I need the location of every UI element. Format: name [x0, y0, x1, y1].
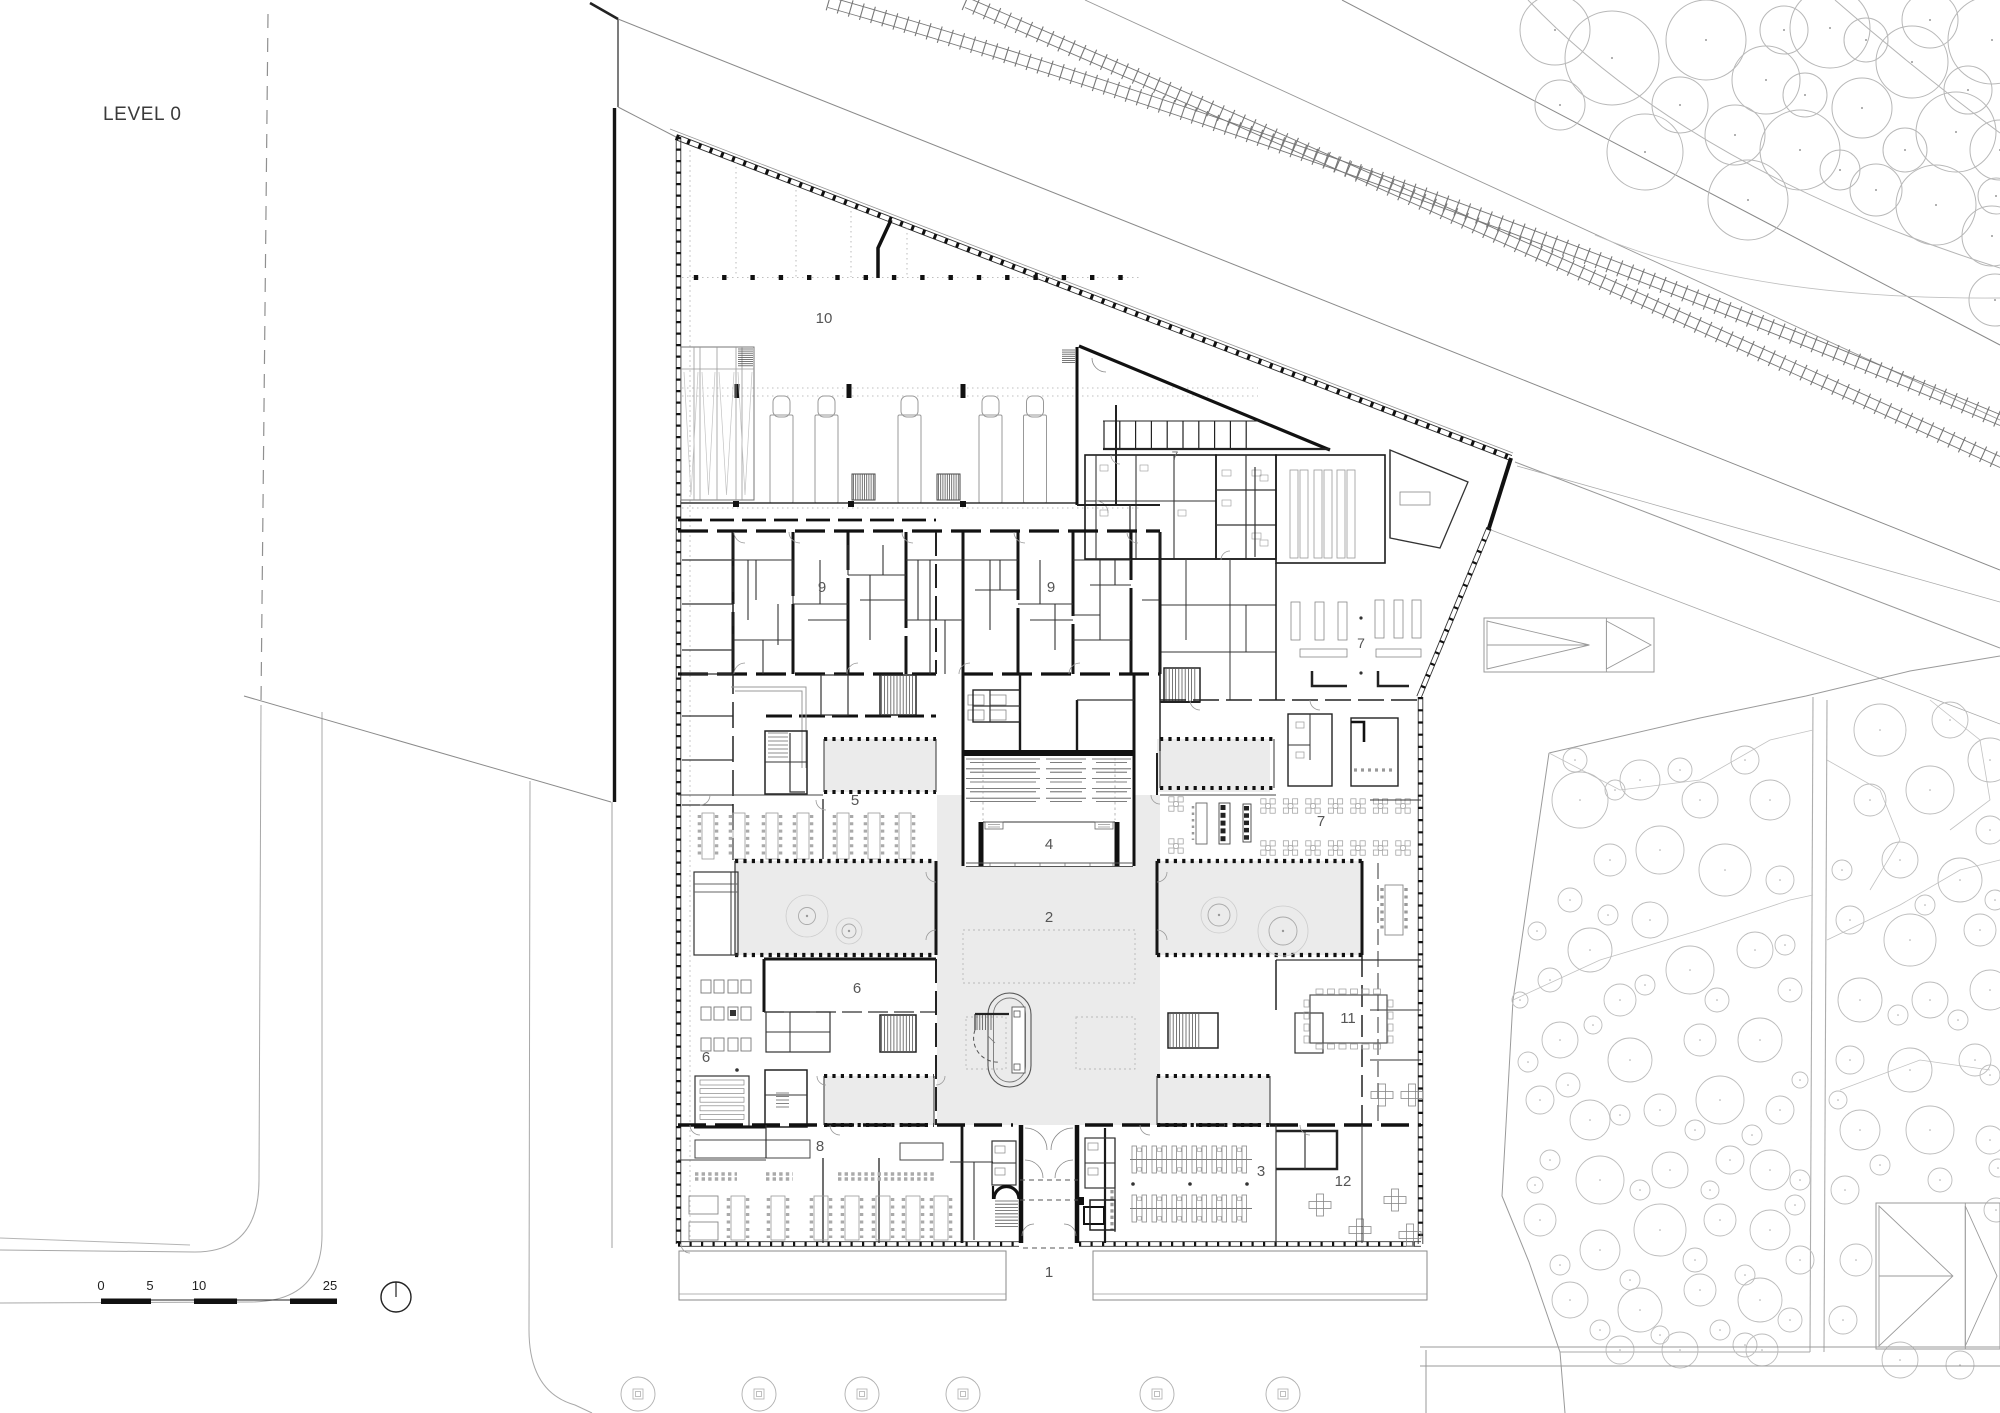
svg-text:11: 11 — [1340, 1010, 1356, 1027]
svg-text:9: 9 — [1047, 579, 1055, 596]
svg-text:10: 10 — [192, 1278, 206, 1293]
svg-text:8: 8 — [816, 1138, 824, 1155]
svg-text:7: 7 — [1172, 449, 1179, 463]
svg-text:7: 7 — [1317, 813, 1325, 830]
svg-text:9: 9 — [818, 579, 826, 596]
svg-text:LEVEL 0: LEVEL 0 — [103, 104, 182, 125]
svg-text:2: 2 — [1045, 909, 1053, 926]
svg-text:0: 0 — [97, 1278, 104, 1293]
svg-text:25: 25 — [323, 1278, 337, 1293]
svg-text:6: 6 — [702, 1049, 710, 1066]
svg-text:4: 4 — [1045, 836, 1053, 853]
svg-text:7: 7 — [1357, 635, 1365, 651]
svg-text:6: 6 — [853, 980, 861, 997]
svg-text:5: 5 — [851, 792, 859, 809]
svg-text:10: 10 — [816, 310, 833, 327]
svg-text:1: 1 — [1045, 1264, 1053, 1281]
svg-text:12: 12 — [1335, 1173, 1352, 1190]
svg-text:3: 3 — [1257, 1163, 1265, 1180]
svg-text:5: 5 — [146, 1278, 153, 1293]
